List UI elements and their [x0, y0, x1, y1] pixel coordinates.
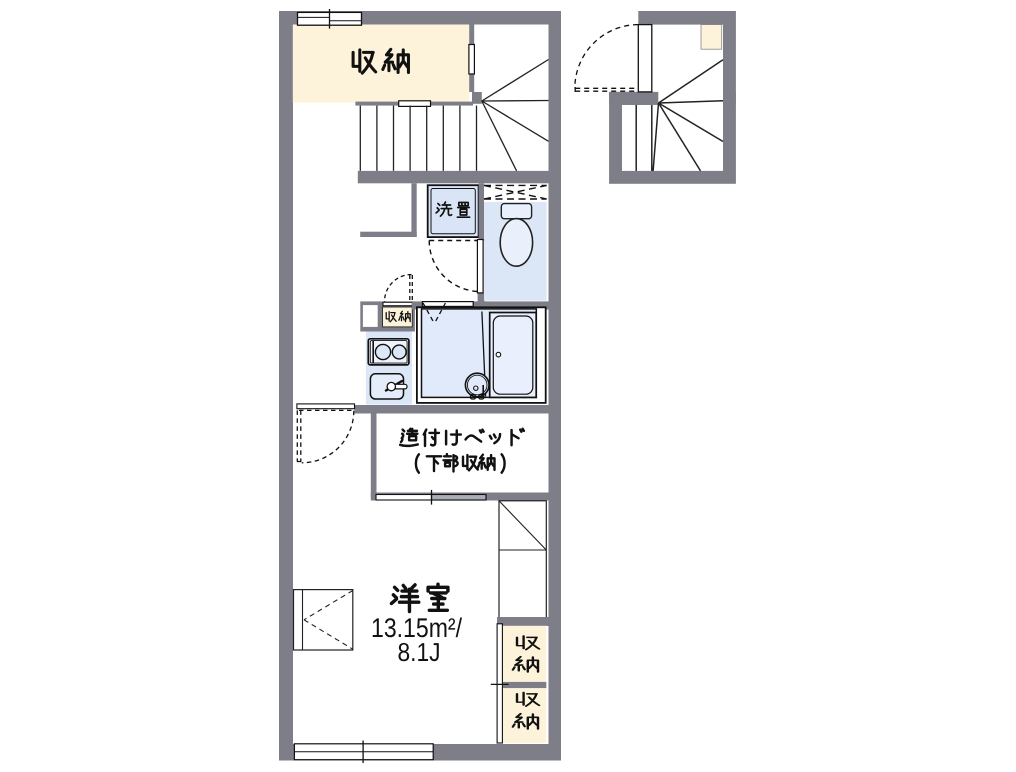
svg-text:8.1J: 8.1J: [398, 637, 441, 667]
